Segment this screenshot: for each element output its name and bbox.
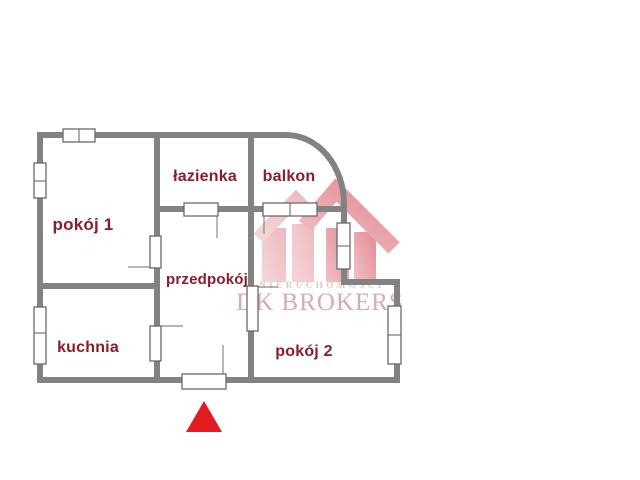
doors <box>150 203 258 389</box>
window-pokoj2-upper-right <box>337 223 350 269</box>
door-kuchnia <box>150 326 161 361</box>
door-pokoj2 <box>247 286 258 331</box>
window-kuchnia-left <box>34 307 46 364</box>
wall-inner-bathroom-divider <box>154 206 347 212</box>
entrance-marker-triangle <box>186 401 222 432</box>
floorplan-canvas: NIERUCHOMOŚCI DK BROKERS <box>0 0 640 480</box>
window-pokoj2-right <box>388 306 401 364</box>
door-pokoj1 <box>150 236 161 268</box>
wall-inner-vertical-right <box>248 132 254 383</box>
door-entrance <box>182 374 226 389</box>
floorplan-drawing <box>0 0 640 480</box>
room-label-lazienka: łazienka <box>173 168 237 186</box>
room-label-kuchnia: kuchnia <box>57 339 119 357</box>
room-label-balkon: balkon <box>263 168 316 186</box>
room-label-pokoj-1: pokój 1 <box>53 215 114 235</box>
window-top <box>63 129 95 142</box>
window-pokoj1-left <box>34 163 46 198</box>
room-label-pokoj-2: pokój 2 <box>275 343 332 361</box>
wall-outer-step <box>341 279 400 285</box>
wall-inner-kitchen-divider <box>37 283 160 289</box>
door-lazienka <box>184 203 218 216</box>
room-label-przedpokoj: przedpokój <box>166 271 248 288</box>
window-balkon <box>263 203 317 216</box>
windows <box>34 129 401 364</box>
